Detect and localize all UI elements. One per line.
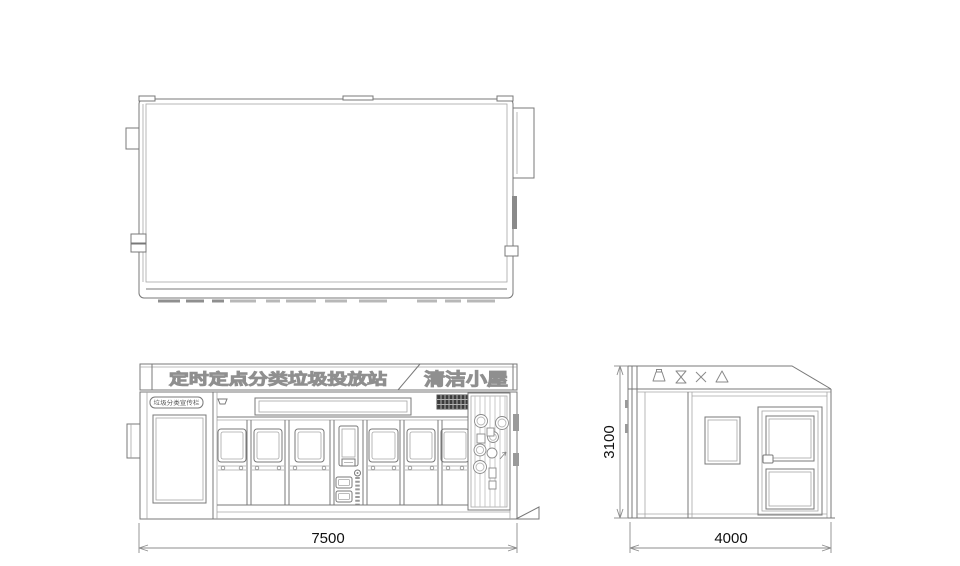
- fascia-icons: [653, 370, 728, 384]
- plan-left-tab-upper: [131, 234, 146, 243]
- plan-left-tab-lower: [131, 244, 146, 252]
- deposit-hatch-window: [441, 429, 469, 462]
- front-banner-title: 定时定点分类垃圾投放站: [169, 370, 387, 388]
- deposit-hatch-window: [218, 429, 246, 462]
- side-left-tick-upper: [625, 400, 628, 408]
- deposit-hatch-window: [254, 429, 282, 462]
- hatch-rails: [218, 466, 467, 470]
- side-window-inner: [708, 420, 737, 461]
- side-depth-value: 4000: [714, 530, 747, 547]
- plan-top-left-step: [139, 96, 155, 101]
- plan-right-canopy: [513, 108, 534, 178]
- front-elevation: 定时定点分类垃圾投放站 清洁小屋 垃圾分类宣传栏: [127, 364, 539, 519]
- front-right-vent-upper: [513, 414, 519, 431]
- side-window-outer: [705, 417, 740, 464]
- plan-outer-shell: [139, 99, 513, 298]
- door-glass-lower: [766, 469, 814, 509]
- entry-ramp: [516, 507, 539, 519]
- plan-left-vent-box: [126, 128, 139, 149]
- deposit-hatch-window: [407, 429, 435, 462]
- plan-inner-frame: [146, 104, 507, 282]
- front-banner-right-title: 清洁小屋: [424, 369, 508, 390]
- publicity-board-inner: [156, 418, 203, 500]
- side-left-tick-lower: [625, 424, 628, 433]
- plan-top-right-step: [497, 96, 513, 101]
- front-width-value: 7500: [311, 530, 344, 547]
- door-glass-upper: [766, 416, 814, 461]
- hourglass-icon: [676, 371, 686, 383]
- height-dimension: 3100: [601, 366, 628, 518]
- front-left-vent-box: [127, 424, 140, 458]
- plan-right-lower-tab: [505, 246, 518, 256]
- side-door: [758, 407, 822, 515]
- info-label-text: 垃圾分类宣传栏: [154, 399, 200, 407]
- bottle-icon: [653, 370, 665, 382]
- front-right-vent-lower: [513, 453, 519, 466]
- height-value: 3100: [601, 425, 618, 458]
- drawing-canvas: 定时定点分类垃圾投放站 清洁小屋 垃圾分类宣传栏: [0, 0, 960, 566]
- deposit-hatch-window: [295, 429, 324, 462]
- led-sign-outer: [255, 398, 411, 415]
- decor-panel: [468, 393, 510, 510]
- side-depth-dimension: 4000: [630, 522, 831, 553]
- deposit-hatch-window: [369, 429, 398, 462]
- door-handle: [763, 455, 773, 463]
- plan-right-vent-strip: [512, 196, 517, 229]
- side-elevation: [625, 366, 835, 518]
- plan-top-tab: [343, 96, 373, 100]
- front-width-dimension: 7500: [139, 523, 517, 553]
- center-door-bay: [336, 426, 361, 505]
- front-small-vent-flag: [218, 399, 227, 404]
- triangle-icon: [716, 371, 728, 382]
- air-grille: [437, 395, 470, 409]
- publicity-board-outer: [153, 415, 206, 503]
- cross-icon: [696, 372, 706, 382]
- front-banner-diagonal-divider: [398, 364, 420, 390]
- led-sign-inner: [259, 401, 407, 412]
- plan-view: [126, 96, 534, 301]
